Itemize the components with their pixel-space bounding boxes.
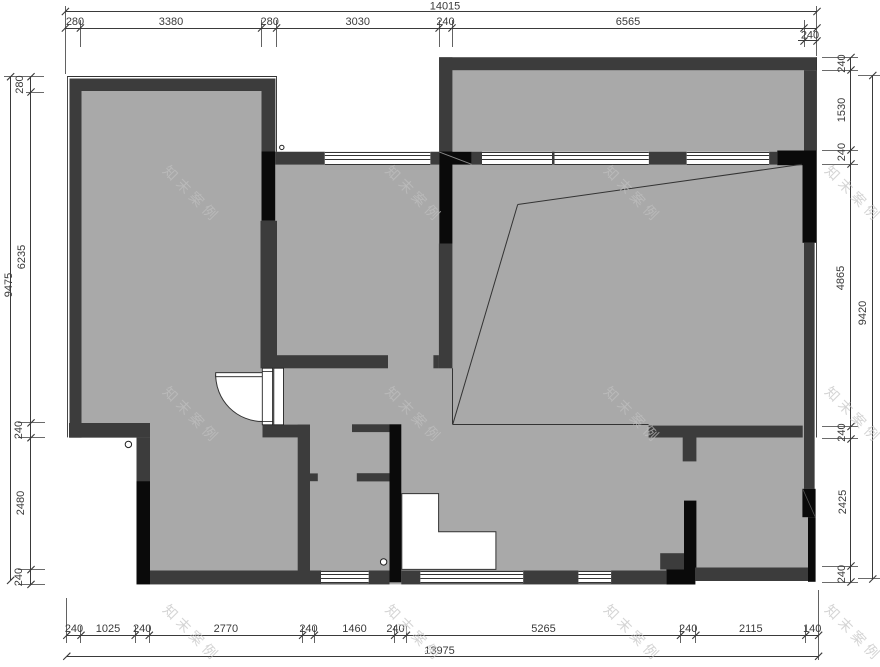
svg-text:5265: 5265	[531, 623, 555, 635]
svg-text:1530: 1530	[836, 98, 848, 122]
svg-text:2425: 2425	[837, 490, 849, 514]
svg-text:9475: 9475	[3, 273, 15, 297]
svg-text:240: 240	[65, 623, 83, 635]
svg-text:240: 240	[836, 423, 848, 441]
svg-text:140: 140	[803, 623, 821, 635]
svg-text:2770: 2770	[214, 623, 238, 635]
svg-text:240: 240	[836, 565, 848, 583]
svg-text:1025: 1025	[96, 623, 120, 635]
svg-text:3030: 3030	[346, 16, 370, 28]
svg-text:3380: 3380	[159, 16, 183, 28]
svg-text:280: 280	[261, 16, 279, 28]
svg-text:2480: 2480	[15, 491, 27, 515]
svg-text:240: 240	[133, 623, 151, 635]
svg-text:240: 240	[836, 54, 848, 72]
svg-text:240: 240	[836, 143, 848, 161]
svg-text:6565: 6565	[616, 16, 640, 28]
svg-text:2115: 2115	[739, 623, 763, 635]
svg-text:240: 240	[13, 568, 25, 586]
svg-text:240: 240	[299, 623, 317, 635]
svg-text:240: 240	[801, 30, 819, 42]
svg-text:14015: 14015	[430, 1, 461, 13]
svg-text:6235: 6235	[16, 245, 28, 269]
svg-text:240: 240	[679, 623, 697, 635]
svg-text:280: 280	[14, 75, 26, 93]
svg-text:280: 280	[66, 16, 84, 28]
svg-text:4865: 4865	[835, 266, 847, 290]
svg-text:9420: 9420	[857, 301, 869, 325]
svg-text:1460: 1460	[342, 623, 366, 635]
svg-text:240: 240	[436, 16, 454, 28]
svg-text:240: 240	[13, 421, 25, 439]
